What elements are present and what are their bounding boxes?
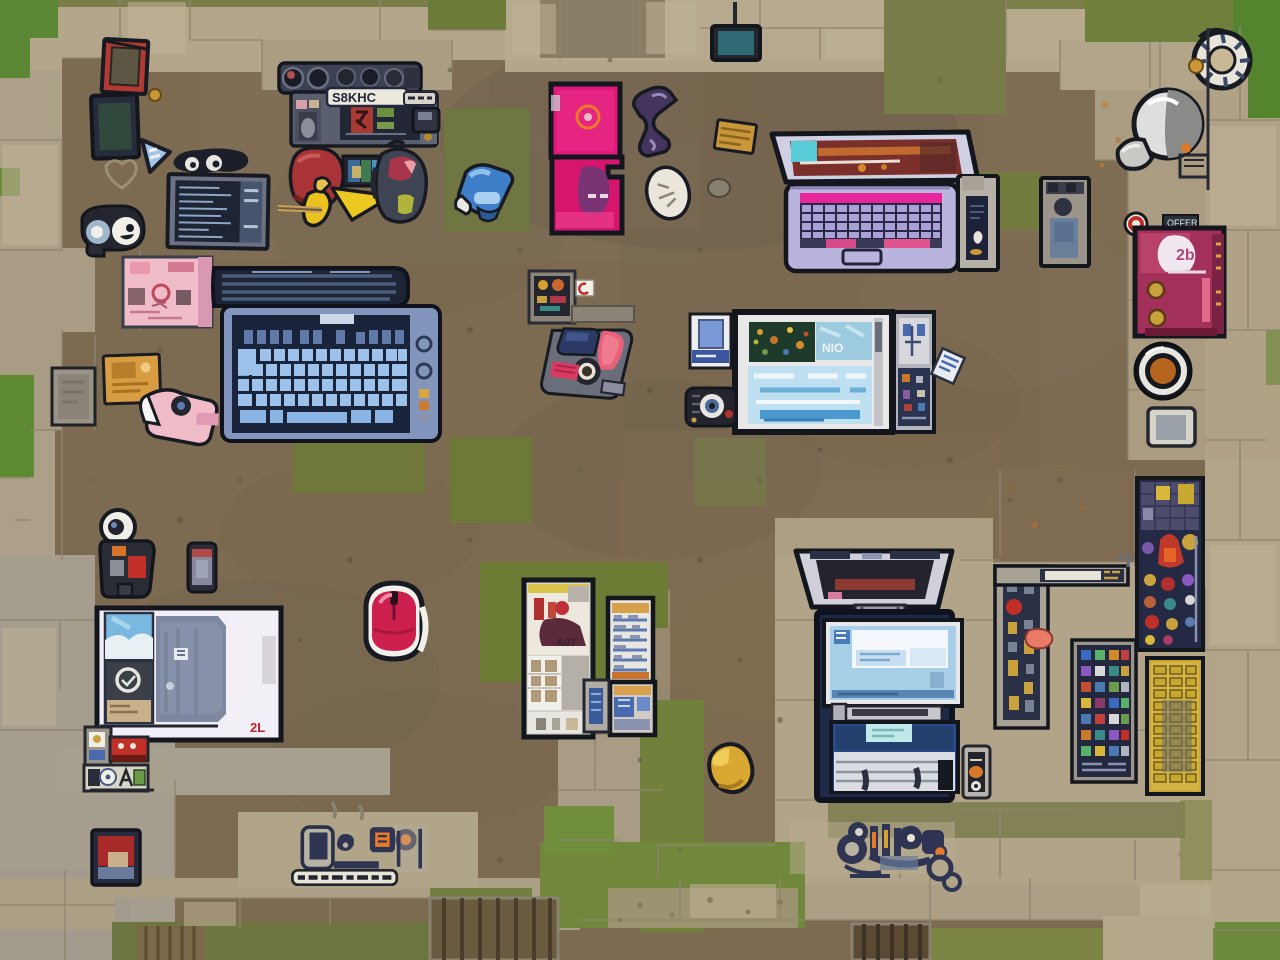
svg-text:2b: 2b (1176, 247, 1195, 264)
svg-text:S8KHC: S8KHC (332, 90, 377, 105)
svg-text:A07: A07 (556, 637, 576, 649)
svg-text:2L: 2L (250, 720, 265, 735)
svg-text:NIO: NIO (822, 341, 843, 355)
